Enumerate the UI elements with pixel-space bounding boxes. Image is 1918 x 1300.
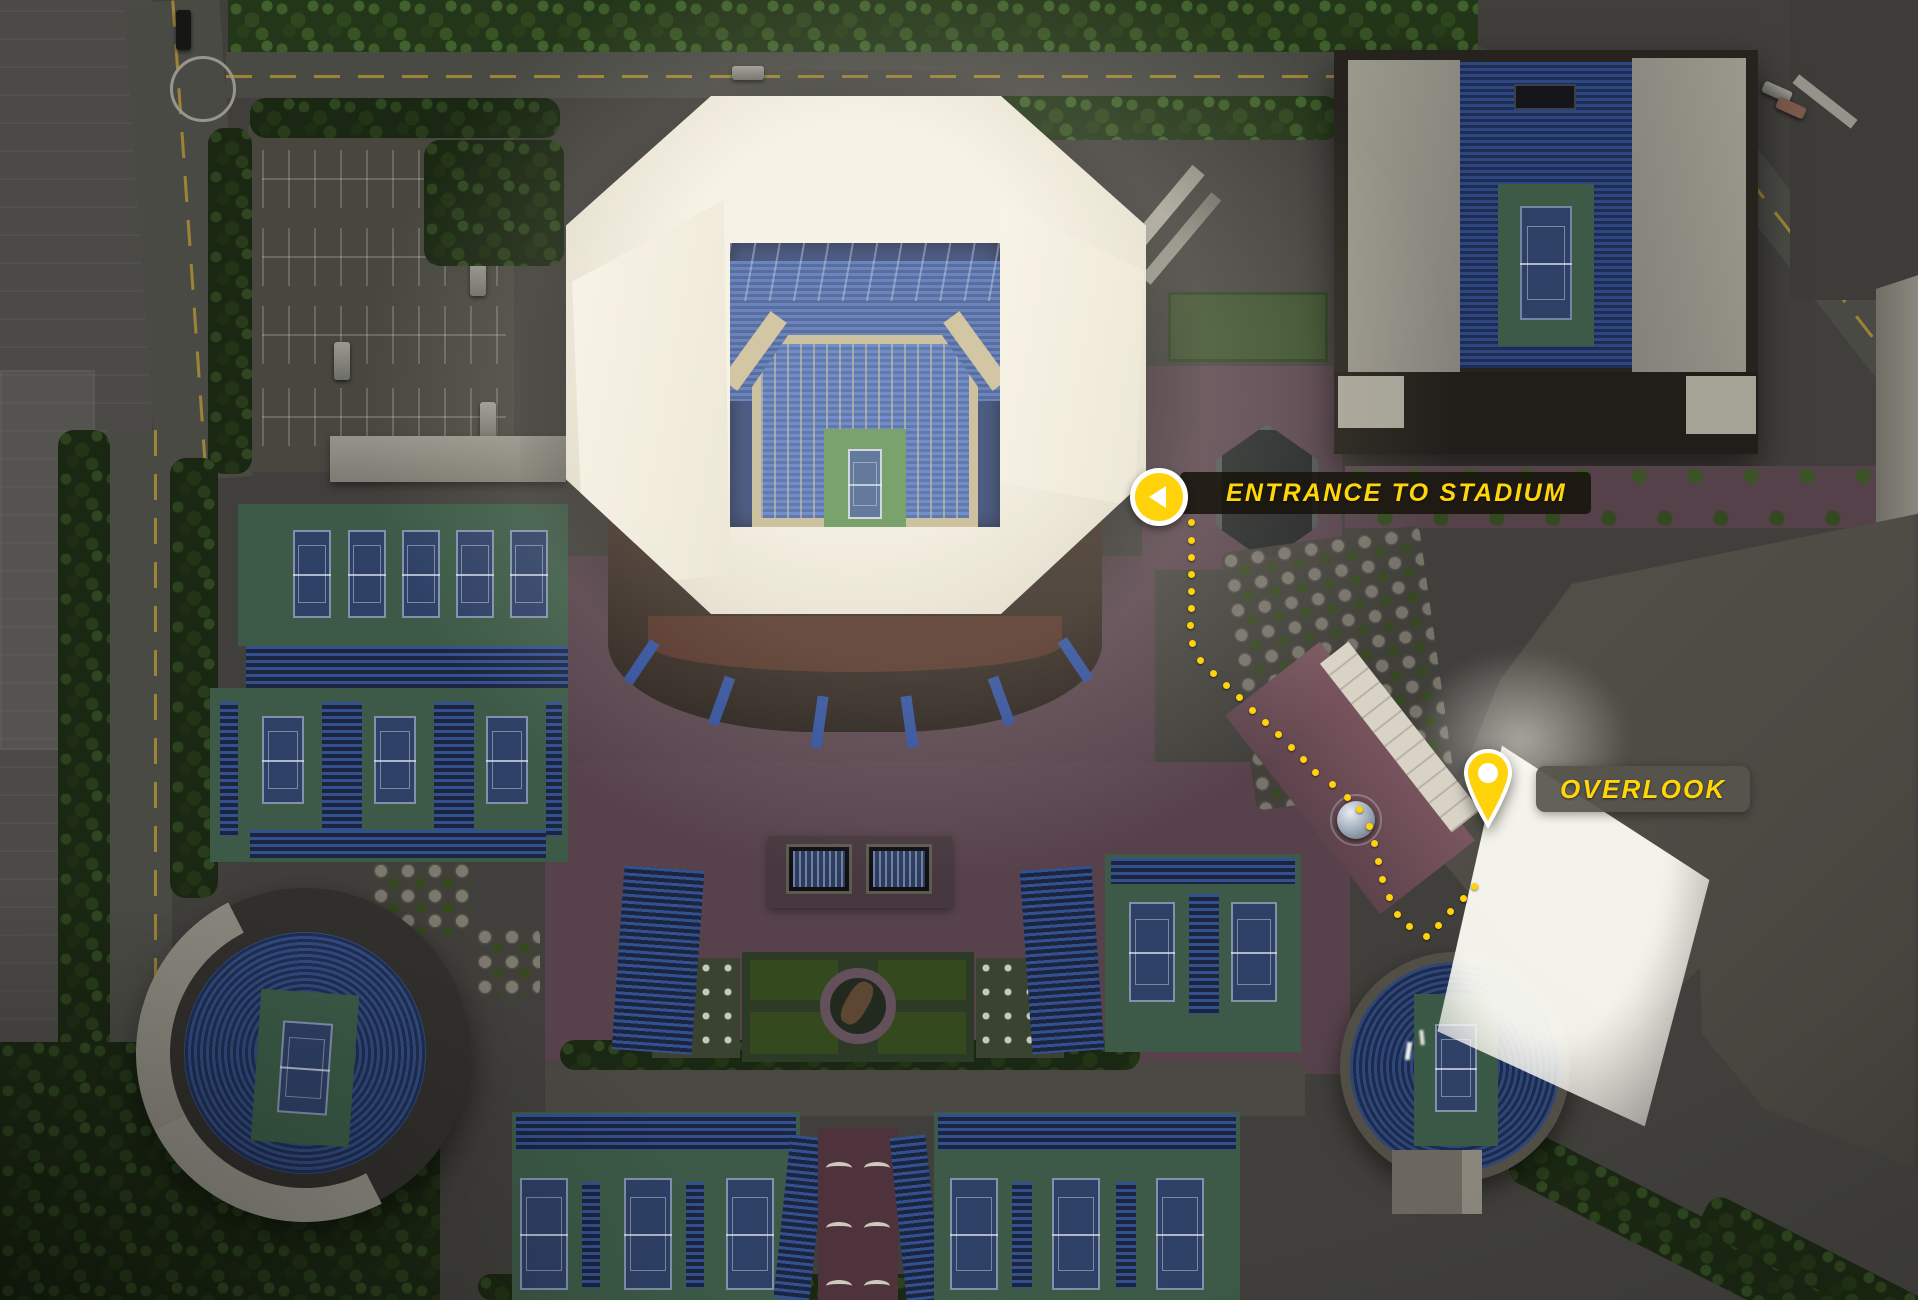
arthur-ashe-stadium[interactable] [566,96,1146,614]
route-dot [1394,911,1401,918]
practice-courts-west-lower [210,688,568,862]
aerial-map: ENTRANCE TO STADIUM OVERLOOK [0,0,1918,1300]
courts-mid-right [1105,854,1301,1052]
ashe-bowl-opening [730,243,1000,527]
map-pin-icon[interactable] [1461,748,1515,832]
courts-south-left [512,1112,800,1300]
video-screen [786,844,852,894]
route-dot [1223,682,1230,689]
walkway-band [545,1062,1305,1116]
roof-wing-east [994,196,1144,506]
overlook-label[interactable]: OVERLOOK [1536,766,1750,812]
truck [176,10,191,50]
industrial-area-northeast [1790,0,1918,300]
umbrella-terrace [476,928,540,996]
parking-row [262,306,506,364]
louis-armstrong-stadium[interactable] [1334,50,1758,454]
entrance-label[interactable]: ENTRANCE TO STADIUM [1180,472,1591,514]
parked-car [480,402,496,440]
route-dot [1406,923,1413,930]
courts-south-right [934,1112,1240,1300]
tree-strip [208,128,252,474]
arbor-walkway [818,1128,898,1300]
unisphere-fountain [1330,794,1382,846]
roundabout [170,56,236,122]
tree-strip [250,98,560,138]
route-dot [1447,908,1454,915]
fountain-garden [742,952,974,1062]
service-buildings [1392,1150,1482,1214]
video-screens-wall [768,836,952,908]
back-arrow-icon [1149,486,1166,508]
court-17-stadium[interactable] [1340,952,1570,1182]
grandstand-stadium[interactable] [140,888,470,1218]
tree-strip-north [228,0,1478,52]
grandstand-wedge-east [1020,866,1105,1055]
route-dot [1460,895,1467,902]
route-dot [1210,670,1217,677]
tree-strip-west-edge [58,430,110,1090]
practice-courts-west-upper [238,504,568,646]
grandstand-wedge-west [612,865,705,1054]
parked-car [334,342,350,380]
entrance-marker[interactable] [1130,468,1188,526]
route-dot [1423,933,1430,940]
video-screen [866,844,932,894]
route-dot [1435,922,1442,929]
